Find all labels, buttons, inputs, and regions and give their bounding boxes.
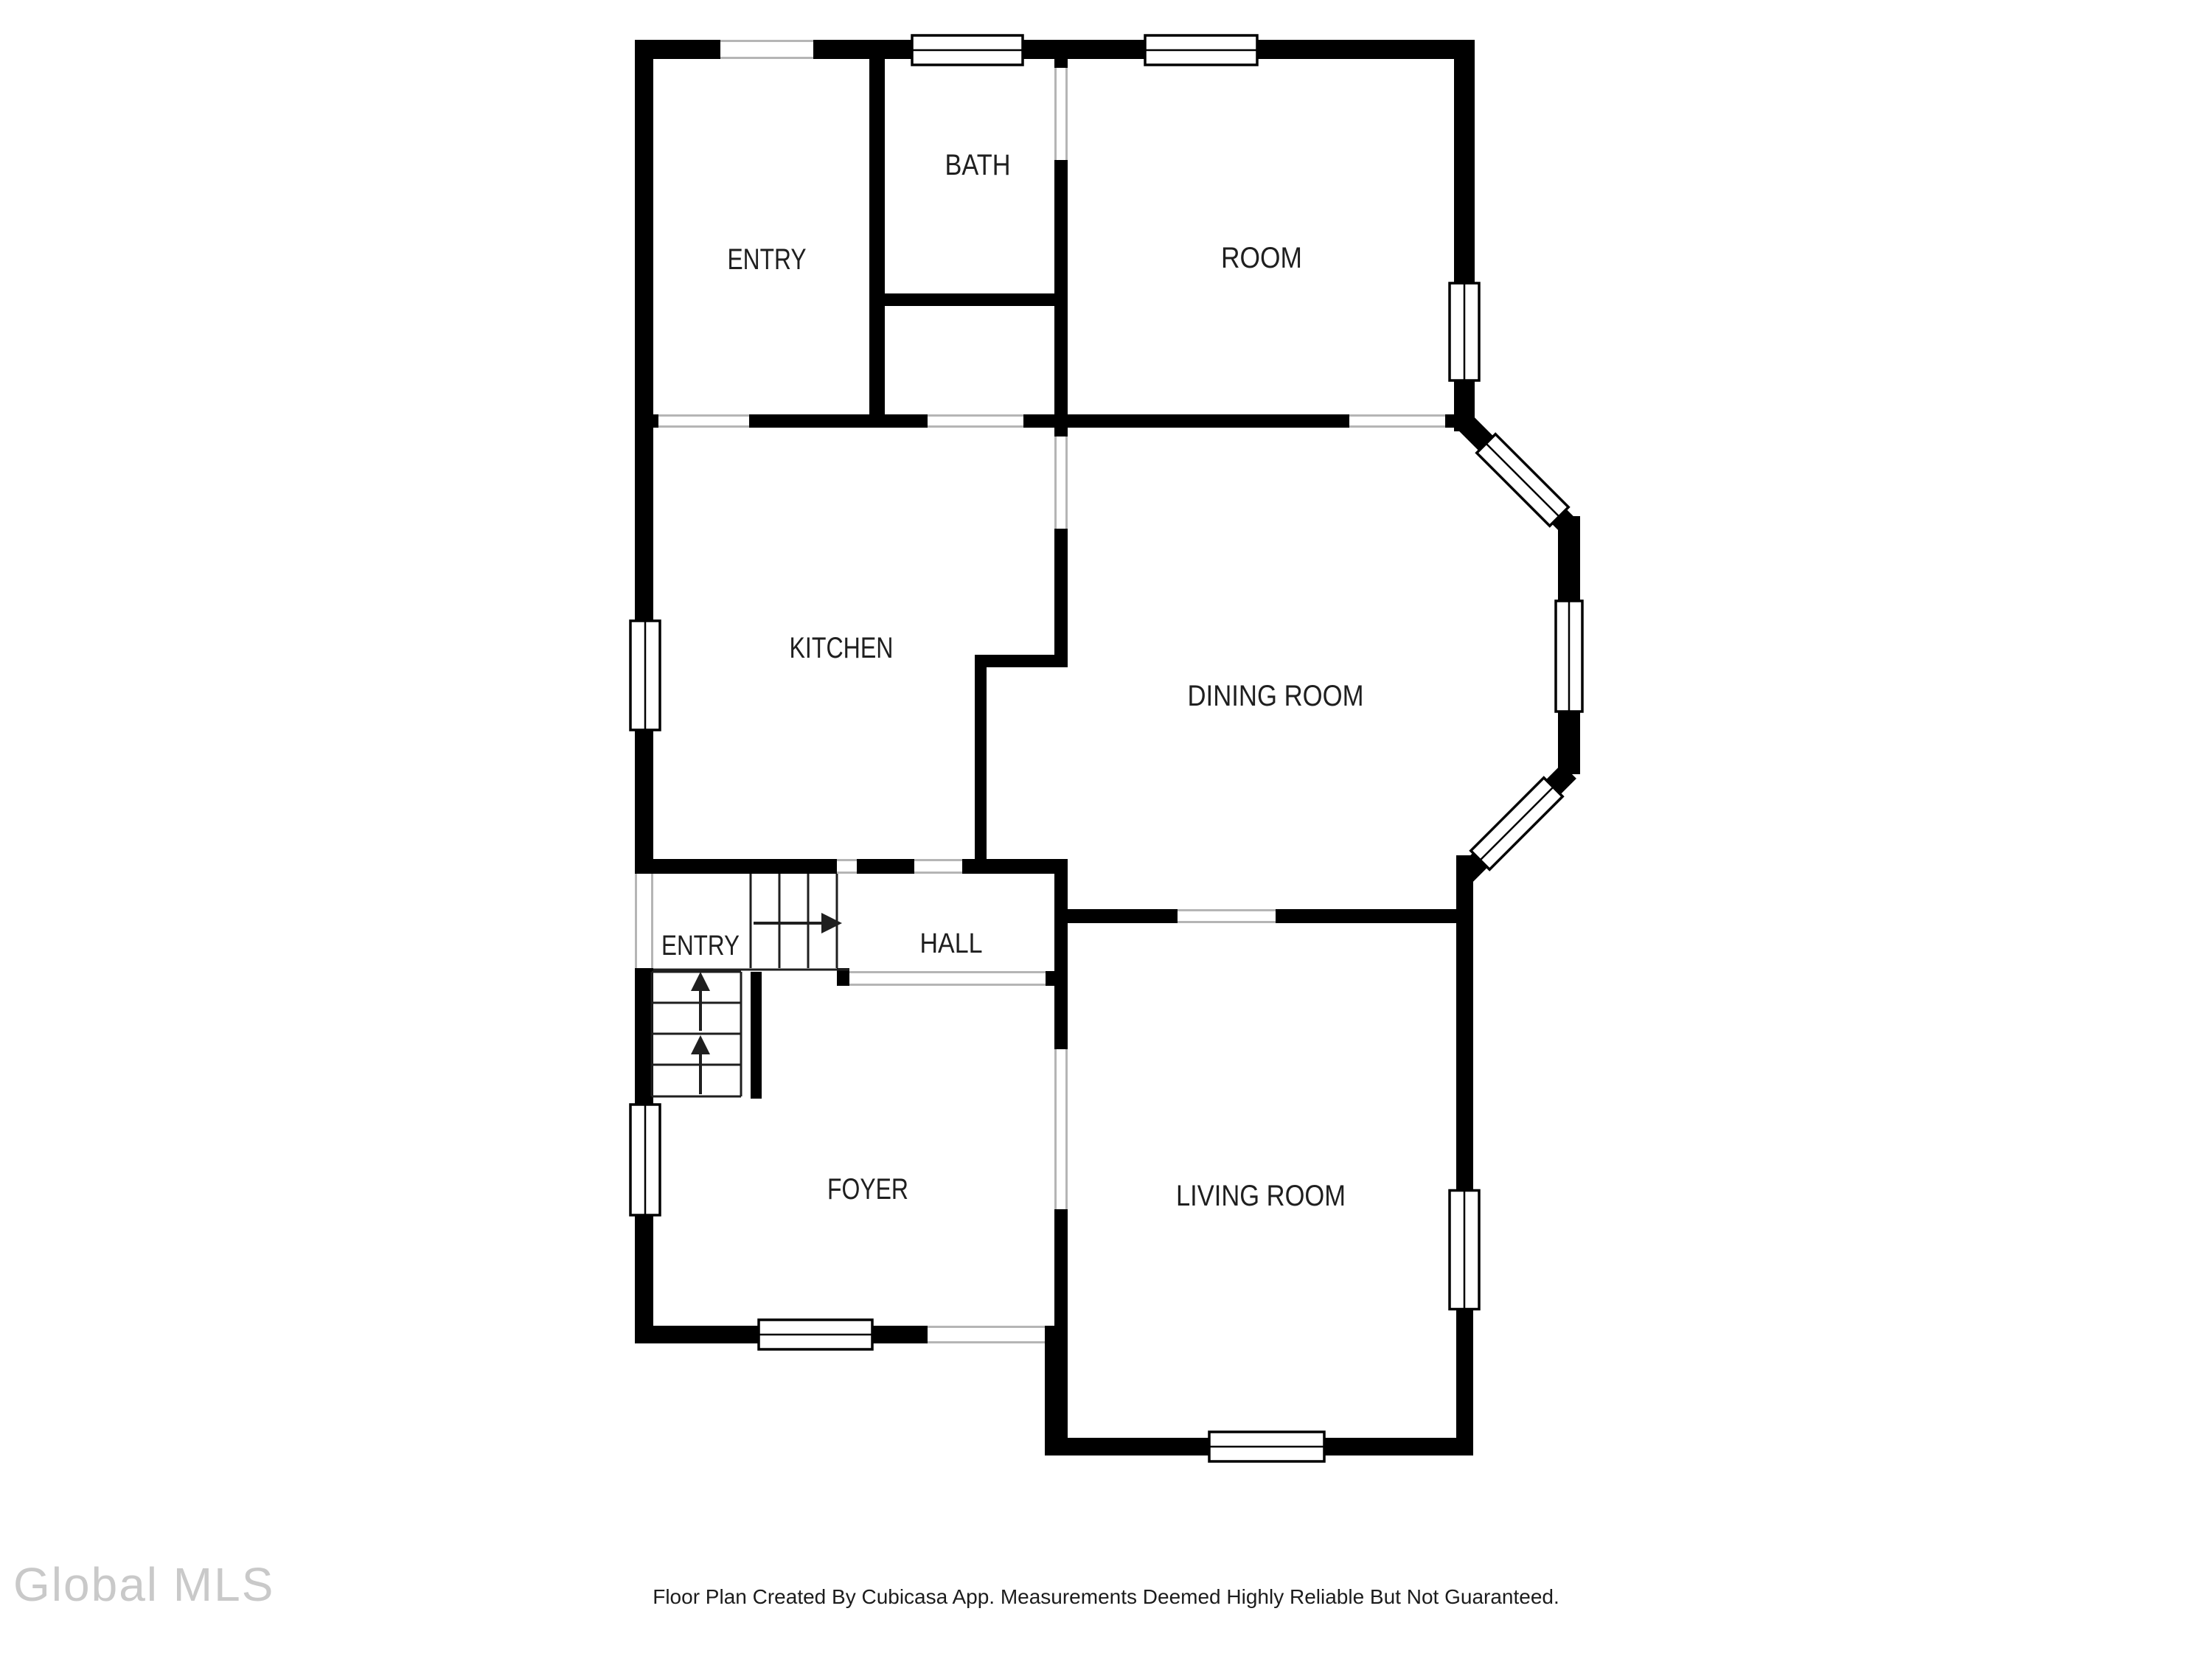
wall [1324,1438,1473,1455]
wall [869,293,1057,306]
window-icon [1209,1432,1324,1461]
room-label: KITCHEN [790,632,894,664]
room-label: BATH [945,149,1011,181]
wall [1054,874,1068,1049]
wall [872,1326,928,1343]
floor-plan-page: ENTRYBATHROOMKITCHENDINING ROOMENTRYHALL… [0,0,2212,1659]
wall [635,40,653,874]
wall [635,1326,759,1343]
wall [1045,1326,1068,1455]
wall [975,667,987,861]
wall [1023,40,1145,59]
stair-direction-arrowhead [691,1035,710,1054]
room-label: LIVING ROOM [1176,1180,1346,1212]
wall [1046,971,1054,986]
wall [751,972,762,1099]
window-icon [1477,434,1568,526]
wall [1054,59,1068,68]
wall [1454,40,1475,283]
room-label: ENTRY [728,243,807,276]
wall [837,968,849,986]
wall [1068,909,1178,923]
window-icon [630,621,660,730]
window-icon [1450,283,1479,380]
wall [1054,160,1068,437]
window-icon [1556,601,1582,712]
window-icon [1471,778,1562,869]
wall [975,655,1068,667]
window-icon [630,1105,660,1215]
room-label: FOYER [827,1173,908,1206]
wall [1054,1209,1068,1326]
wall [635,859,837,874]
wall [1257,40,1475,59]
room-label: ENTRY [661,931,740,961]
wall [635,1215,653,1343]
room-label: ROOM [1221,242,1302,274]
wall [635,968,653,1105]
window-icon [912,35,1023,65]
floor-plan-svg: ENTRYBATHROOMKITCHENDINING ROOMENTRYHALL… [0,0,2212,1659]
wall [869,59,885,428]
wall [1276,909,1473,923]
wall [1456,855,1473,1194]
wall [1023,414,1349,428]
window-icon [759,1320,872,1349]
wall [813,40,912,59]
room-label: DINING ROOM [1188,680,1364,712]
stair-direction-arrowhead [691,972,710,991]
stair-direction-arrowhead [821,913,842,933]
window-icon [1145,35,1257,65]
wall [749,414,928,428]
wall [1045,1438,1209,1455]
window-icon [1450,1191,1479,1310]
wall [1054,529,1068,667]
room-label: HALL [920,928,983,959]
wall [1456,1305,1473,1455]
wall [857,859,914,874]
footer-disclaimer: Floor Plan Created By Cubicasa App. Meas… [0,1585,2212,1609]
